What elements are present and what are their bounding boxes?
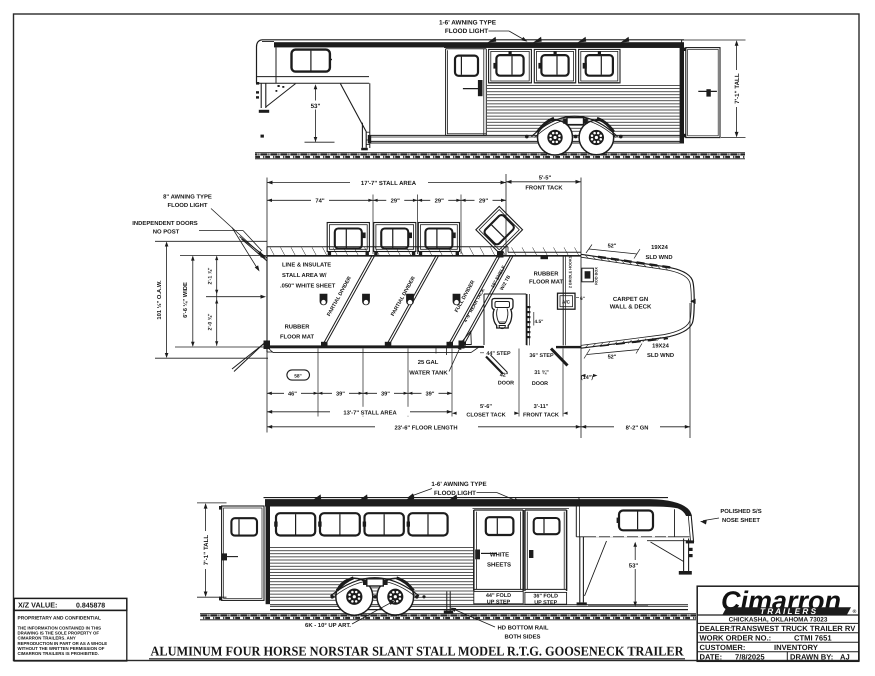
svg-text:FRONT TACK: FRONT TACK xyxy=(523,413,559,419)
svg-text:CIMARRON TRAILERS IS PROHIBITE: CIMARRON TRAILERS IS PROHIBITED. xyxy=(18,651,99,656)
svg-text:UP STEP: UP STEP xyxy=(487,600,511,606)
svg-text:DOOR: DOOR xyxy=(498,381,514,387)
svg-text:39": 39" xyxy=(425,392,434,398)
svg-text:RUBBER: RUBBER xyxy=(534,272,560,278)
svg-text:WORK ORDER NO.:: WORK ORDER NO.: xyxy=(700,633,772,642)
svg-text:SHEETS: SHEETS xyxy=(487,562,511,569)
svg-text:52": 52" xyxy=(608,355,617,361)
svg-text:1-6' AWNING TYPE: 1-6' AWNING TYPE xyxy=(439,20,497,27)
svg-text:39": 39" xyxy=(381,392,390,398)
svg-text:101 ½" O.A.W.: 101 ½" O.A.W. xyxy=(156,280,163,320)
svg-text:1-6' AWNING TYPE: 1-6' AWNING TYPE xyxy=(431,481,486,488)
svg-text:INVENTORY: INVENTORY xyxy=(774,643,818,652)
svg-text:NO POST: NO POST xyxy=(153,229,180,236)
svg-text:17'-7" STALL AREA: 17'-7" STALL AREA xyxy=(361,180,417,187)
svg-text:CLOSET TACK: CLOSET TACK xyxy=(466,413,505,419)
svg-text:WATER TANK: WATER TANK xyxy=(409,370,448,377)
svg-text:2 BRIDLE HOOKS: 2 BRIDLE HOOKS xyxy=(569,255,573,288)
svg-text:LINE & INSULATE: LINE & INSULATE xyxy=(282,262,331,269)
svg-text:POLISHED S/S: POLISHED S/S xyxy=(720,508,761,515)
svg-text:2'-1 ⅞": 2'-1 ⅞" xyxy=(208,267,214,284)
svg-text:FLOOD LIGHT: FLOOD LIGHT xyxy=(168,202,208,209)
svg-text:39": 39" xyxy=(336,392,345,398)
svg-text:8'-2" GN: 8'-2" GN xyxy=(626,425,649,432)
svg-text:25 GAL: 25 GAL xyxy=(418,359,439,366)
svg-text:4.5": 4.5" xyxy=(535,319,544,325)
svg-text:X/Z VALUE:: X/Z VALUE: xyxy=(18,600,57,609)
svg-text:®: ® xyxy=(853,609,857,615)
svg-text:FLOOR MAT: FLOOR MAT xyxy=(280,334,314,341)
svg-text:46": 46" xyxy=(288,392,297,398)
svg-text:58": 58" xyxy=(294,374,302,380)
svg-text:SLD WND: SLD WND xyxy=(645,254,672,261)
svg-text:7'-1" TALL: 7'-1" TALL xyxy=(734,73,741,104)
svg-text:3'-11": 3'-11" xyxy=(534,404,549,410)
svg-text:19X24: 19X24 xyxy=(651,244,669,251)
svg-text:WHITE: WHITE xyxy=(490,552,509,559)
svg-text:29": 29" xyxy=(479,197,488,204)
svg-text:36" STEP: 36" STEP xyxy=(529,353,554,359)
svg-text:13'-7" STALL AREA: 13'-7" STALL AREA xyxy=(343,410,397,417)
svg-text:DOOR: DOOR xyxy=(532,381,548,387)
svg-text:STALL AREA W/: STALL AREA W/ xyxy=(282,272,327,279)
svg-text:44" STEP: 44" STEP xyxy=(486,351,511,357)
svg-text:42": 42" xyxy=(500,373,509,379)
svg-text:8" AWNING TYPE: 8" AWNING TYPE xyxy=(163,193,212,200)
svg-text:UP STEP: UP STEP xyxy=(534,600,557,606)
svg-text:FRONT TACK: FRONT TACK xyxy=(525,185,563,192)
svg-text:BOTH SIDES: BOTH SIDES xyxy=(504,634,540,641)
svg-text:FLOOD LIGHT: FLOOD LIGHT xyxy=(445,28,488,35)
svg-text:WALL & DECK: WALL & DECK xyxy=(610,304,652,311)
svg-text:53": 53" xyxy=(311,103,321,110)
svg-text:74": 74" xyxy=(315,198,324,204)
svg-text:6K - 10° UP ART.: 6K - 10° UP ART. xyxy=(305,622,351,629)
svg-text:36" FOLD: 36" FOLD xyxy=(533,593,558,599)
svg-text:.050" WHITE SHEET: .050" WHITE SHEET xyxy=(280,283,336,290)
svg-text:HD BOTTOM RAIL: HD BOTTOM RAIL xyxy=(498,625,549,632)
svg-text:7'-1" TALL: 7'-1" TALL xyxy=(203,535,210,566)
svg-text:FLOOD LIGHT: FLOOD LIGHT xyxy=(434,490,476,497)
svg-text:5'-6": 5'-6" xyxy=(480,404,492,410)
svg-text:CHICKASHA, OKLAHOMA 73023: CHICKASHA, OKLAHOMA 73023 xyxy=(729,617,828,624)
svg-text:CUSTOMER:: CUSTOMER: xyxy=(700,643,746,652)
svg-text:29": 29" xyxy=(391,197,400,204)
svg-text:2'-0 ⅜": 2'-0 ⅜" xyxy=(208,313,214,330)
svg-text:FLOOR MAT: FLOOR MAT xyxy=(529,279,563,286)
svg-text:ALUMINUM FOUR HORSE NORSTAR SL: ALUMINUM FOUR HORSE NORSTAR SLANT STALL … xyxy=(151,644,684,659)
svg-text:NOSE SHEET: NOSE SHEET xyxy=(722,517,760,524)
svg-text:ROD BOX: ROD BOX xyxy=(595,267,599,285)
svg-text:23'-6" FLOOR LENGTH: 23'-6" FLOOR LENGTH xyxy=(394,425,457,432)
svg-text:TRANSWEST TRUCK TRAILER RV: TRANSWEST TRUCK TRAILER RV xyxy=(731,624,856,633)
svg-text:DEALER:: DEALER: xyxy=(700,624,733,633)
svg-text:19X24: 19X24 xyxy=(652,343,670,350)
svg-text:CARPET GN: CARPET GN xyxy=(613,296,648,303)
svg-text:DRAWN BY:: DRAWN BY: xyxy=(790,653,833,662)
svg-text:INDEPENDENT DOORS: INDEPENDENT DOORS xyxy=(132,220,198,227)
svg-text:SLD WND: SLD WND xyxy=(647,352,674,359)
svg-text:44" FOLD: 44" FOLD xyxy=(486,593,511,599)
svg-text:31 ¾": 31 ¾" xyxy=(534,370,549,376)
svg-text:DATE:: DATE: xyxy=(700,653,723,662)
svg-text:6": 6" xyxy=(580,296,585,302)
svg-text:52": 52" xyxy=(608,244,617,250)
svg-text:RUBBER: RUBBER xyxy=(285,325,311,331)
svg-text:29": 29" xyxy=(435,197,444,204)
svg-text:AJ: AJ xyxy=(840,653,850,662)
svg-text:A/C: A/C xyxy=(562,300,571,305)
svg-text:CTMI 7651: CTMI 7651 xyxy=(794,633,832,642)
svg-text:T R A I L E R S: T R A I L E R S xyxy=(760,607,817,616)
svg-text:53": 53" xyxy=(629,563,639,570)
svg-text:6'-6 ¼" WIDE: 6'-6 ¼" WIDE xyxy=(182,282,189,318)
svg-text:0.845878: 0.845878 xyxy=(76,602,105,609)
svg-text:7/8/2025: 7/8/2025 xyxy=(735,653,765,662)
svg-text:PROPRIETARY AND CONFIDENTIAL: PROPRIETARY AND CONFIDENTIAL xyxy=(18,616,101,622)
svg-text:5'-5": 5'-5" xyxy=(539,176,552,182)
